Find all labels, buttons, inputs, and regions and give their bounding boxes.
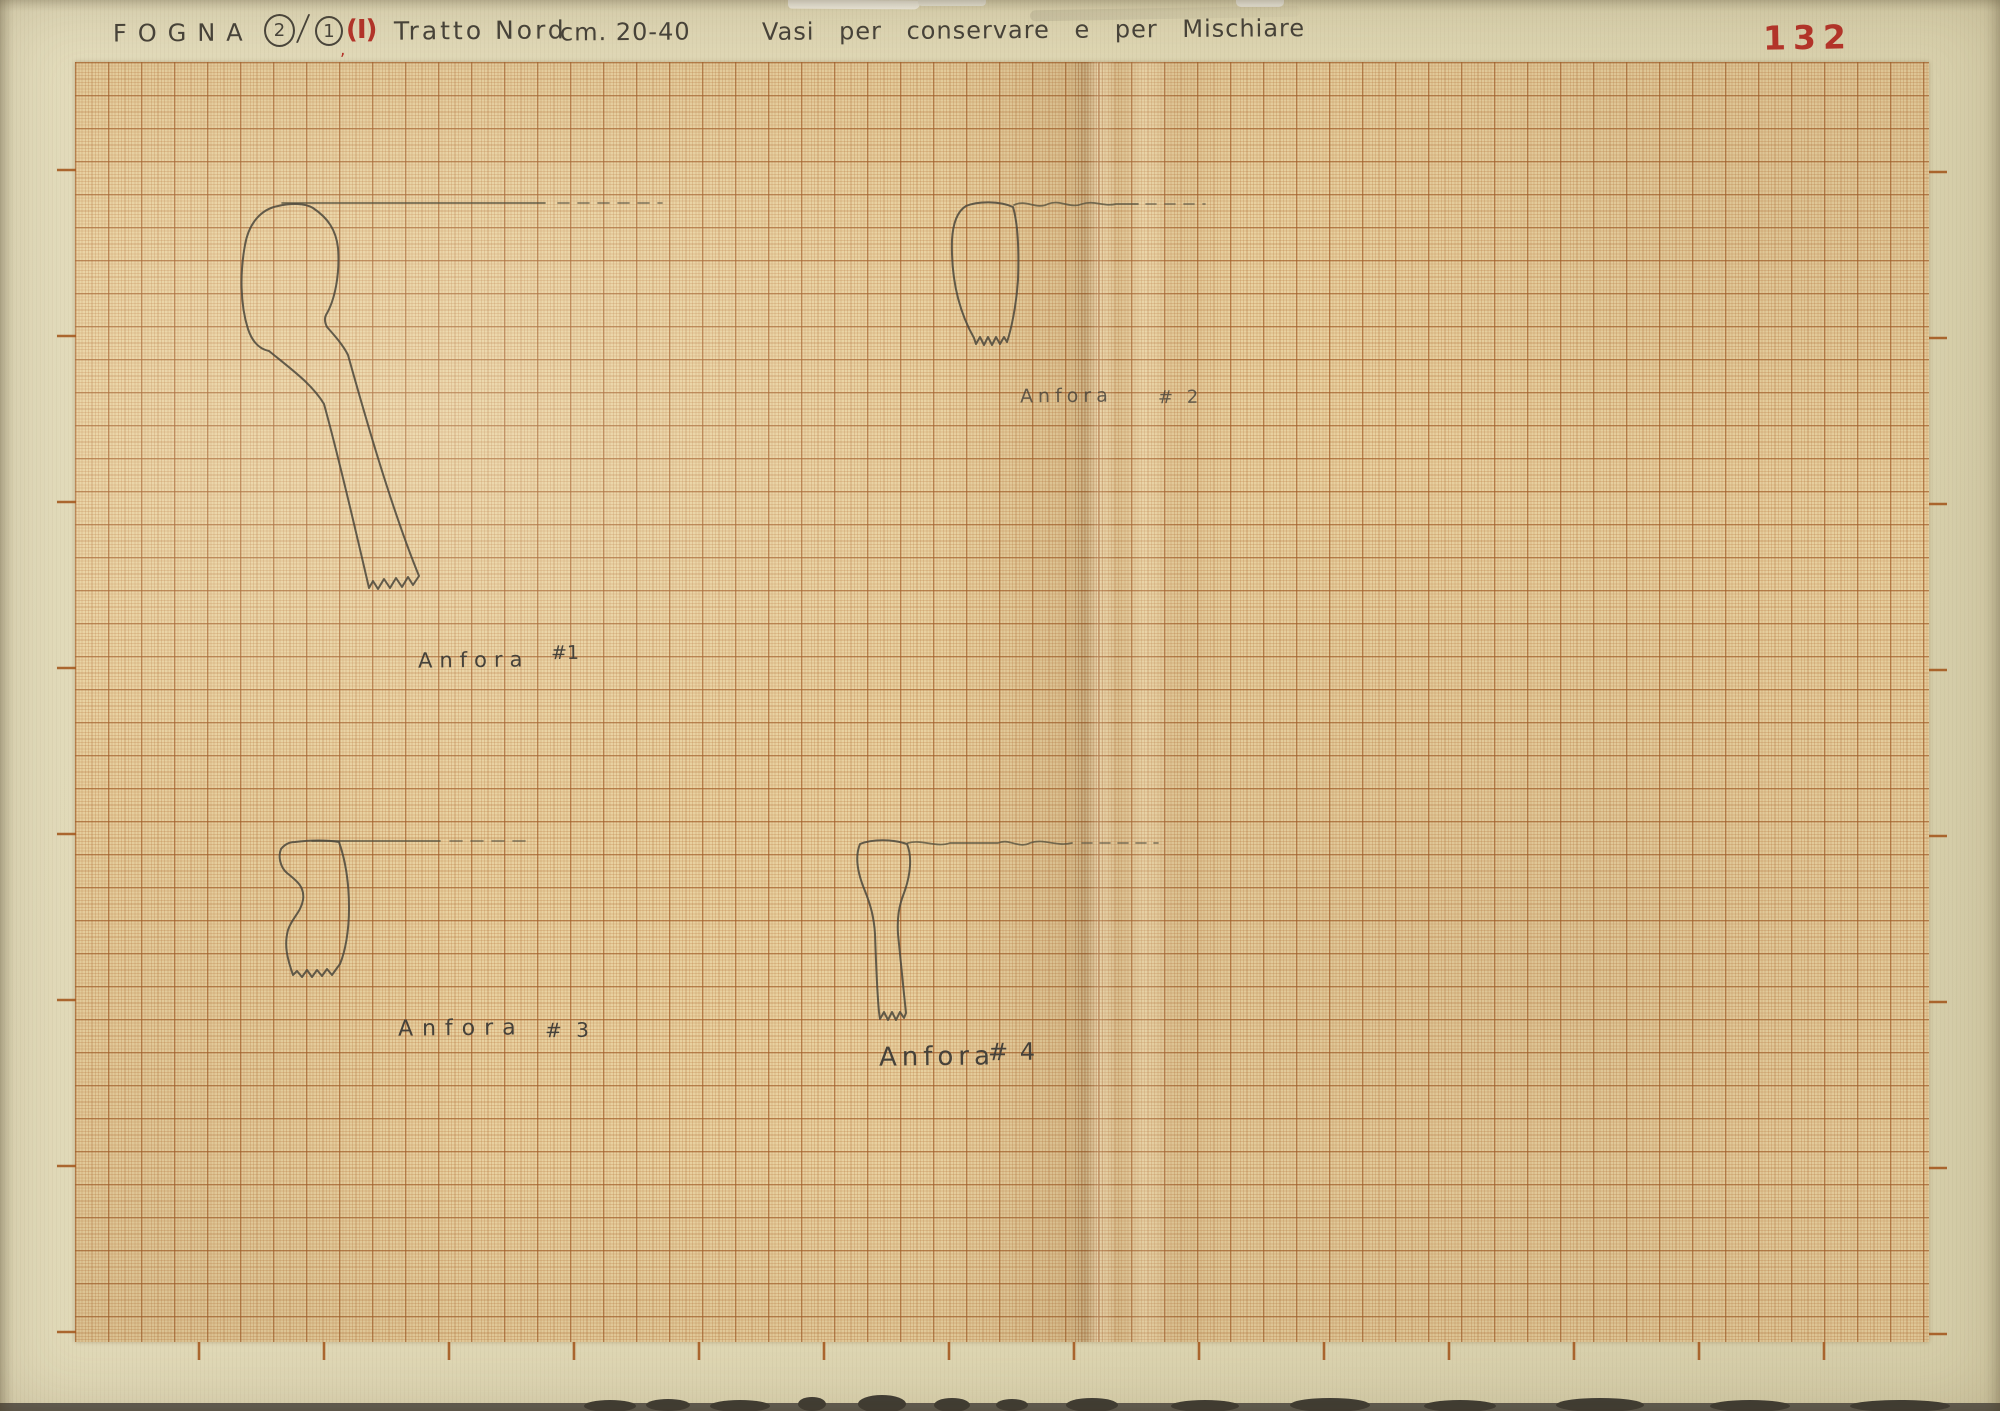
title-section: Tratto Nord xyxy=(394,15,567,45)
title-circled-number-1: 1 xyxy=(315,16,343,46)
left-margin-ticks xyxy=(57,170,76,1332)
vertical-fold-crease xyxy=(940,62,1240,1342)
title-description: Vasi per conservare e per Mischiare xyxy=(762,14,1305,46)
title-circled-number-2: 2 xyxy=(264,14,295,47)
torn-paper-strip xyxy=(918,0,986,6)
figure-label-anfora-2: Anfora xyxy=(1020,385,1113,408)
graph-paper xyxy=(75,62,1929,1342)
page-number: 132 xyxy=(1763,17,1854,58)
bottom-margin-ticks xyxy=(199,1342,1824,1360)
figure-label-anfora-4: Anfora xyxy=(879,1041,995,1072)
figure-number-anfora-4: # 4 xyxy=(988,1038,1037,1067)
underlying-page-edge xyxy=(0,1403,2000,1411)
right-margin-ticks xyxy=(1929,172,1947,1334)
title-red-comma: , xyxy=(340,40,345,60)
figure-number-anfora-1: #1 xyxy=(551,642,579,664)
title-depth-range: cm. 20-40 xyxy=(560,18,691,47)
title-site-label: FOGNA xyxy=(113,19,254,48)
title-roman-numeral: (I) xyxy=(346,15,377,45)
paper-shading xyxy=(75,62,1929,1342)
figure-number-anfora-2: # 2 xyxy=(1158,387,1202,408)
figure-label-anfora-3: Anfora xyxy=(398,1015,525,1041)
scanned-sheet: FOGNA 2 / 1 , (I) Tratto Nord cm. 20-40 … xyxy=(0,0,2000,1411)
figure-label-anfora-1: Anfora xyxy=(418,647,530,672)
fold-compressed-lines xyxy=(1075,62,1105,1342)
figure-number-anfora-3: # 3 xyxy=(545,1018,593,1042)
torn-paper-strip xyxy=(788,0,920,9)
underlying-page-marks xyxy=(584,1395,1950,1411)
title-slash: / xyxy=(295,7,311,49)
